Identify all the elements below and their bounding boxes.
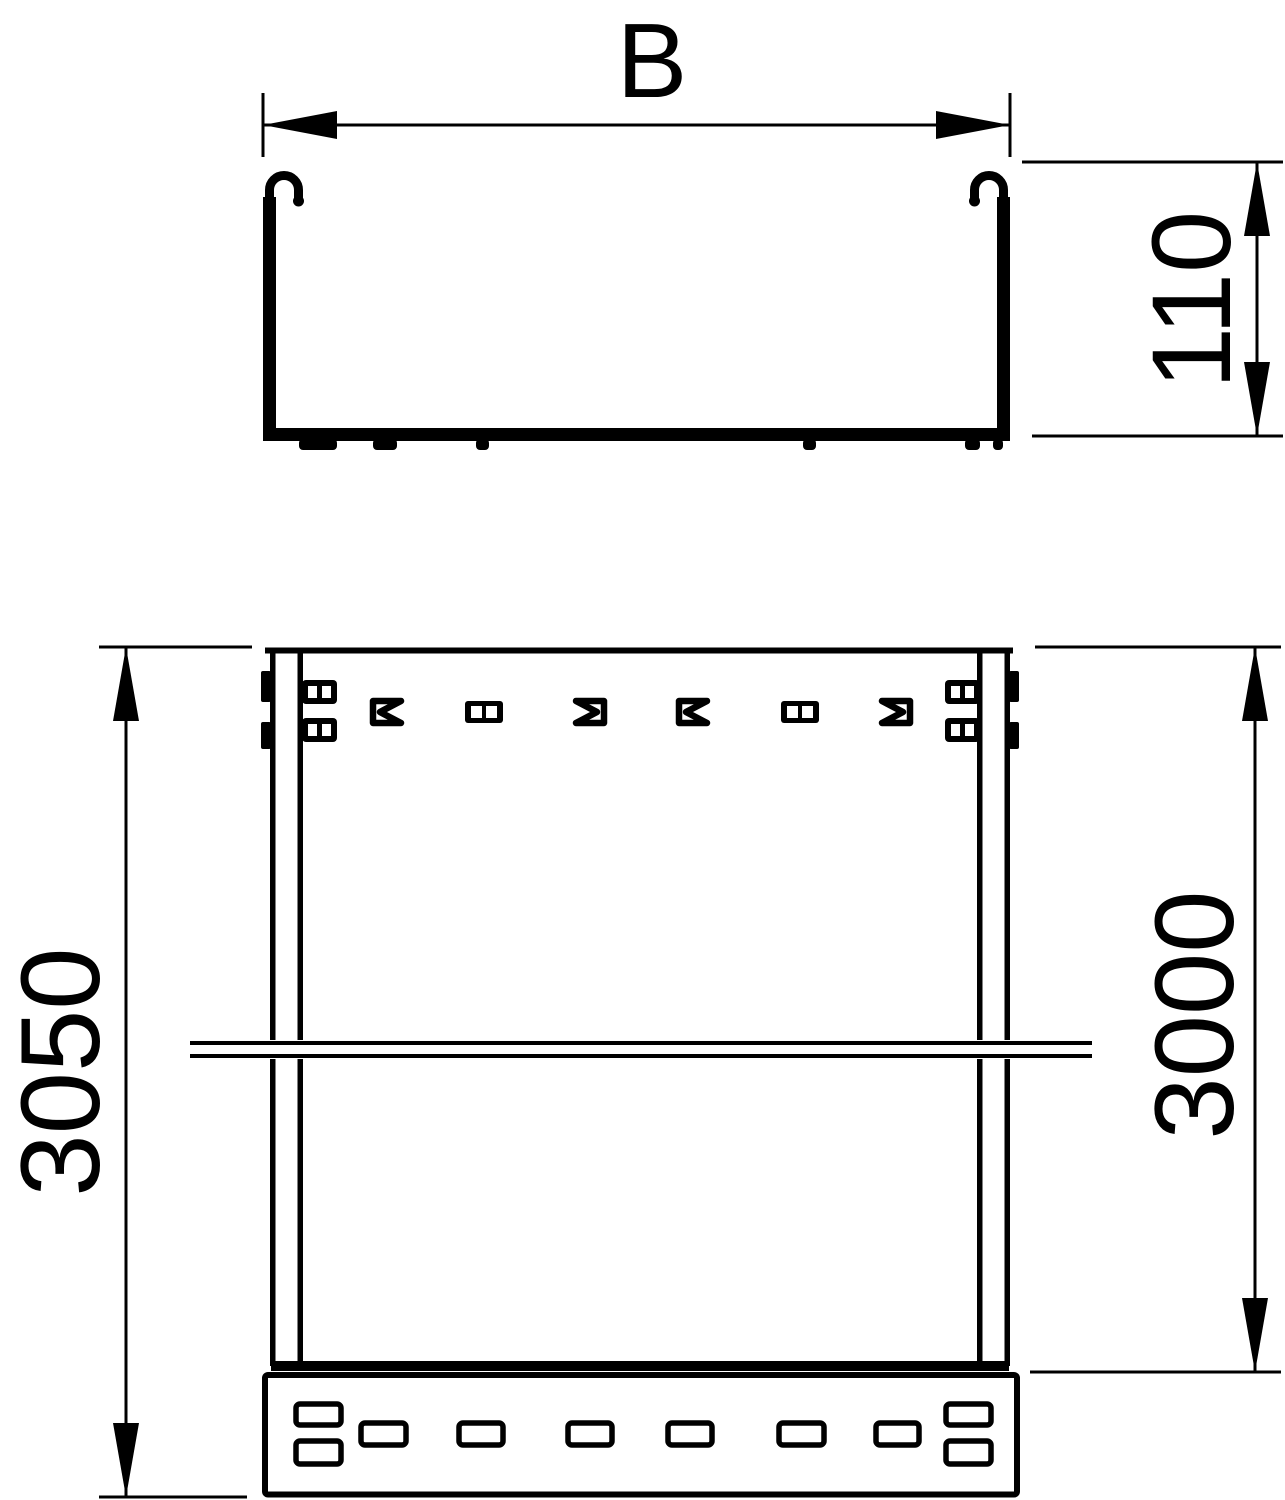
slot xyxy=(876,1423,919,1445)
punch-hole xyxy=(322,724,331,736)
cable-tray-technical-drawing: B 110 xyxy=(0,0,1285,1500)
slot xyxy=(296,1404,341,1425)
punch xyxy=(945,680,980,704)
dimension-width-b: B xyxy=(263,2,1010,157)
foot xyxy=(373,439,397,450)
tab xyxy=(261,722,271,749)
dimension-height-110: 110 xyxy=(1022,162,1283,436)
punch xyxy=(945,718,980,742)
rail-punch-left xyxy=(302,680,337,742)
punch-hole xyxy=(308,724,317,736)
dimension-section-3000: 3000 xyxy=(1030,647,1281,1372)
punch-hole xyxy=(308,686,317,698)
drawing-canvas: B 110 xyxy=(0,0,1285,1500)
tray-end-edge xyxy=(271,1361,1009,1371)
dimension-label-overall-length: 3050 xyxy=(0,947,123,1196)
double-punch xyxy=(781,701,819,723)
punch-hole xyxy=(951,686,960,698)
arrowhead-down xyxy=(113,1423,139,1497)
tray-profile xyxy=(263,176,1010,451)
arrowhead-left xyxy=(263,111,337,139)
slot xyxy=(361,1423,406,1445)
break-lines xyxy=(190,1043,1092,1056)
profile-right-hook xyxy=(975,176,1004,215)
profile-right-hook-tip xyxy=(969,196,980,207)
clamp-cutout-open-left xyxy=(576,701,604,723)
foot xyxy=(993,439,1003,450)
slot xyxy=(668,1423,712,1445)
clamp-cutout-open-left xyxy=(882,701,910,723)
punch-hole xyxy=(965,724,974,736)
profile-left-hook-tip xyxy=(293,196,304,207)
punch xyxy=(302,718,337,742)
foot xyxy=(476,439,489,450)
tray-plan-body xyxy=(190,648,1092,1371)
clamp-cutout-open-right xyxy=(679,701,707,723)
arrowhead-up xyxy=(113,647,139,721)
dimension-label-section-length: 3000 xyxy=(1132,890,1257,1139)
punch-hole xyxy=(471,706,482,718)
dimension-label-width: B xyxy=(617,2,688,120)
slot xyxy=(459,1423,503,1445)
clamp-cutout-open-right xyxy=(373,701,401,723)
punch xyxy=(302,680,337,704)
double-punch xyxy=(465,701,503,723)
rail-punch-right xyxy=(945,680,980,742)
arrowhead-down xyxy=(1242,1298,1268,1372)
slot xyxy=(946,1441,991,1464)
punch xyxy=(465,701,503,723)
foot xyxy=(299,439,337,450)
perforation-band xyxy=(302,680,980,742)
punch-hole xyxy=(322,686,331,698)
foot xyxy=(803,439,816,450)
connector-plate xyxy=(265,1375,1017,1495)
punch-hole xyxy=(486,706,497,718)
arrowhead-up xyxy=(1242,647,1268,721)
punch xyxy=(781,701,819,723)
plan-view: 3050 3000 xyxy=(0,647,1281,1497)
slot xyxy=(779,1423,824,1445)
arrowhead-right xyxy=(936,111,1010,139)
profile-left-hook xyxy=(270,176,299,215)
tab xyxy=(1009,671,1019,702)
dimension-overall-3050: 3050 xyxy=(0,647,252,1497)
slot xyxy=(296,1441,341,1464)
cross-section-view: B 110 xyxy=(263,2,1283,450)
plate-outline xyxy=(265,1375,1017,1495)
tab xyxy=(1009,722,1019,749)
plate-slots xyxy=(296,1404,991,1464)
foot xyxy=(965,439,980,450)
side-rails xyxy=(273,648,1008,1366)
punch-hole xyxy=(951,724,960,736)
slot xyxy=(946,1404,991,1425)
punch-hole xyxy=(802,706,813,718)
tab xyxy=(261,671,271,702)
slot xyxy=(568,1423,612,1445)
punch-hole xyxy=(965,686,974,698)
dimension-label-height: 110 xyxy=(1129,211,1254,390)
punch-hole xyxy=(787,706,798,718)
